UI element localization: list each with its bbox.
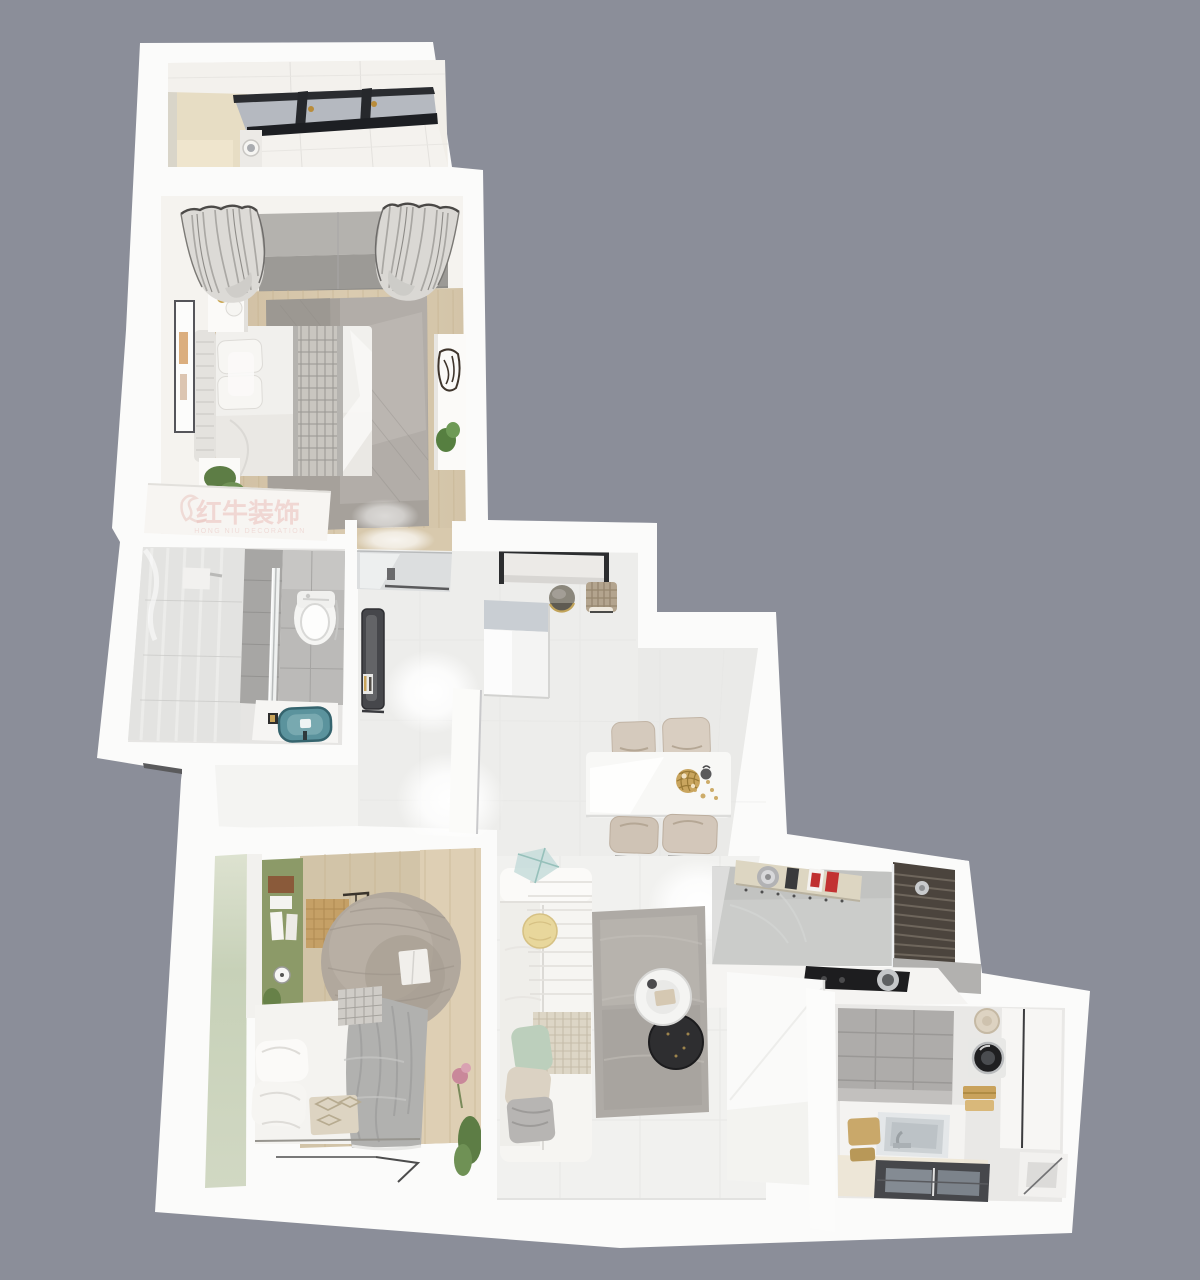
- svg-text:HONG NIU DECORATION: HONG NIU DECORATION: [194, 528, 306, 535]
- svg-text:红牛装饰: 红牛装饰: [196, 498, 300, 528]
